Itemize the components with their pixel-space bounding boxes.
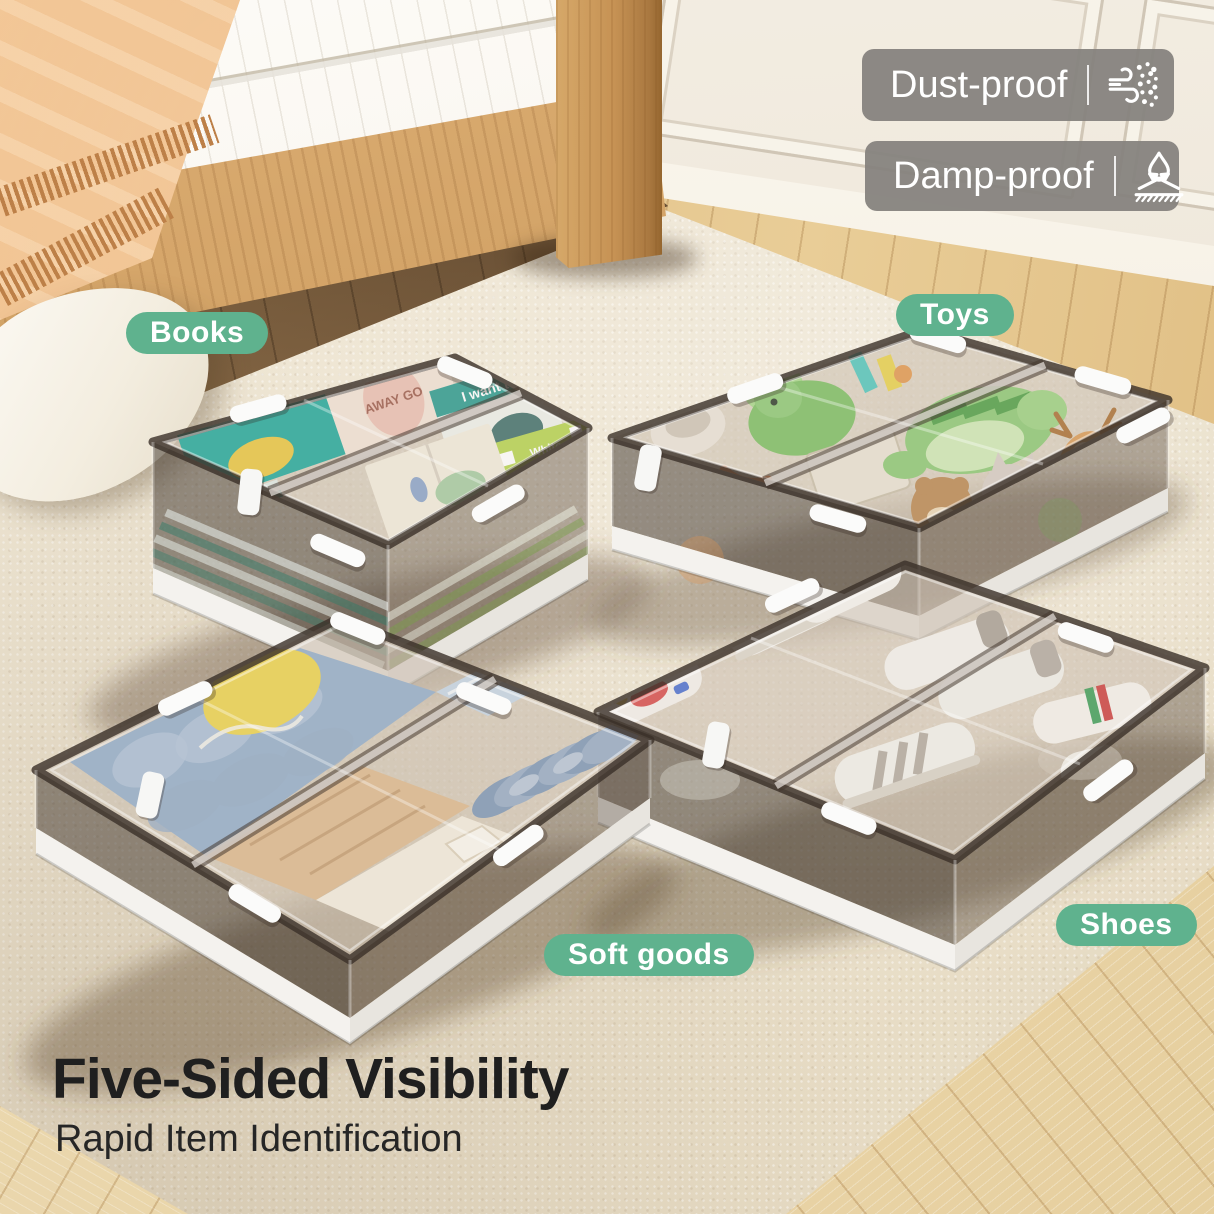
badge-dust-proof: Dust-proof: [862, 49, 1174, 121]
subheadline: Rapid Item Identification: [55, 1118, 463, 1161]
label-pill-toys: Toys: [896, 294, 1014, 336]
badge-damp-proof: Damp-proof: [865, 141, 1179, 211]
badge-dust-proof-label: Dust-proof: [890, 64, 1067, 107]
headline: Five-Sided Visibility: [52, 1046, 568, 1112]
badge-damp-proof-label: Damp-proof: [893, 155, 1094, 198]
wind-dust-icon: [1105, 58, 1159, 112]
label-pill-shoes: Shoes: [1056, 904, 1197, 946]
badge-divider: [1087, 65, 1089, 105]
badge-divider: [1114, 156, 1116, 196]
label-pill-books: Books: [126, 312, 268, 354]
bed-leg: [556, 0, 662, 268]
water-repel-icon: [1132, 149, 1186, 203]
label-pill-soft-goods: Soft goods: [544, 934, 754, 976]
